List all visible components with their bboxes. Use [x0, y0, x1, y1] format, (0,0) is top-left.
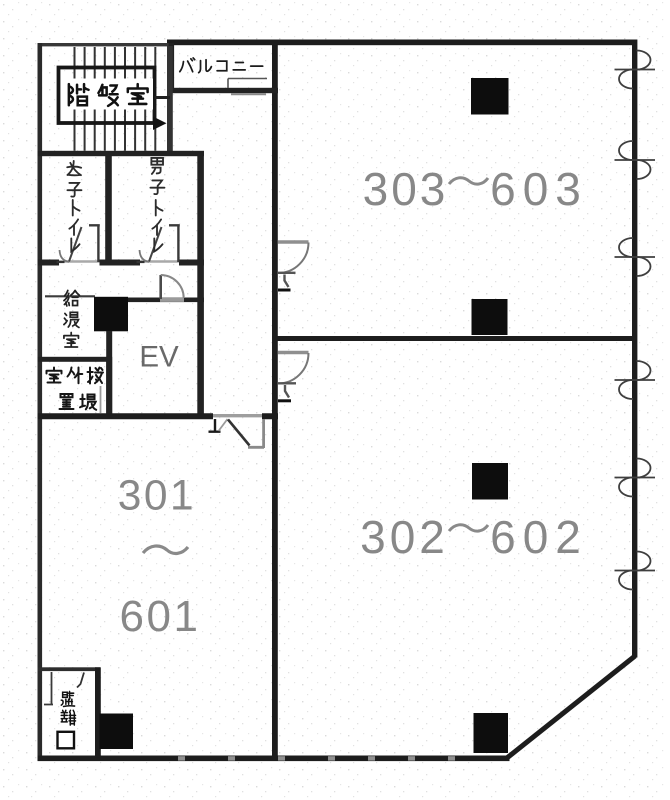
svg-text:603: 603	[490, 163, 588, 215]
svg-text:602: 602	[490, 511, 588, 563]
svg-text:EV: EV	[139, 341, 179, 374]
svg-text:302: 302	[360, 511, 449, 563]
svg-text:601: 601	[120, 592, 201, 641]
svg-text:301: 301	[118, 472, 196, 519]
svg-text:303: 303	[363, 163, 449, 215]
